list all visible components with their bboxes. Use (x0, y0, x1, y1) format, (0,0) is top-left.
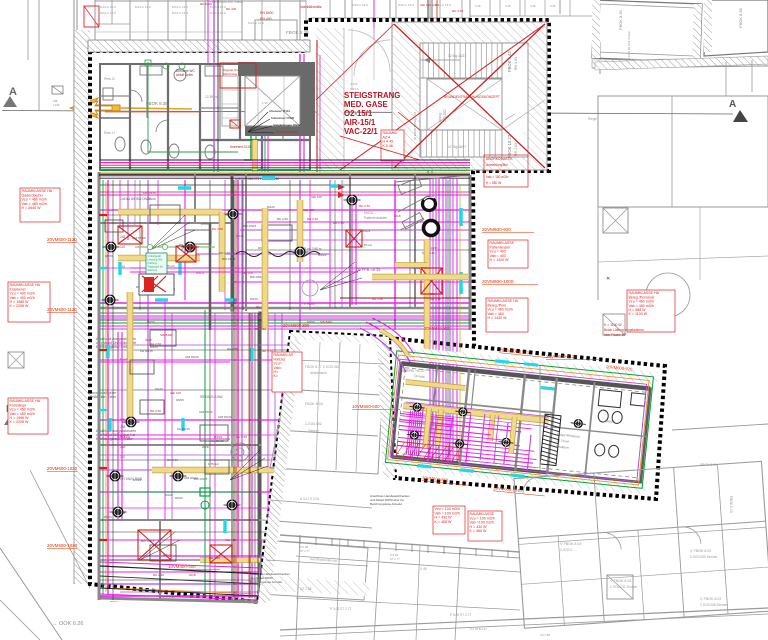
svg-text:Abwasser Ø110: Abwasser Ø110 (269, 109, 290, 113)
svg-text:Pers. H: Pers. H (104, 131, 115, 135)
svg-text:10VM400-400: 10VM400-400 (168, 564, 196, 569)
svg-text:FBOK 8.38: FBOK 8.38 (738, 7, 743, 28)
svg-text:BW DN15: BW DN15 (250, 275, 264, 279)
svg-text:H.EG0.09 E83 Schlaf: H.EG0.09 E83 Schlaf (627, 31, 631, 60)
svg-text:4.48: 4.48 (475, 4, 481, 8)
svg-text:BW DN15: BW DN15 (222, 257, 236, 261)
svg-text:Tragbügel für: Tragbügel für (148, 265, 163, 269)
svg-text:RH 2.50: RH 2.50 (236, 435, 247, 439)
svg-text:20VM600-920: 20VM600-920 (482, 227, 511, 232)
svg-text:ST 2.77: ST 2.77 (390, 557, 400, 561)
svg-text:C.EG0.062: C.EG0.062 (305, 422, 322, 426)
svg-text:A: A (9, 86, 17, 98)
svg-text:20VM600-1000: 20VM600-1000 (482, 279, 514, 284)
svg-text:DN20: DN20 (155, 387, 163, 391)
svg-text:RW22: RW22 (362, 229, 371, 233)
svg-text:RH 2.50: RH 2.50 (255, 327, 266, 331)
svg-text:4.48: 4.48 (550, 4, 556, 8)
svg-text:4.48: 4.48 (530, 4, 536, 8)
svg-text:C.EG0.009 Zimmer: C.EG0.009 Zimmer (690, 555, 718, 559)
svg-text:BW DN15: BW DN15 (194, 477, 208, 481)
svg-text:O2-15/1: O2-15/1 (344, 109, 373, 118)
svg-text:SW 8400: SW 8400 (118, 435, 131, 439)
svg-text:12 Stg 16/27: 12 Stg 16/27 (448, 145, 466, 149)
svg-text:RH 2.50: RH 2.50 (430, 297, 441, 301)
svg-text:12.38 m²: 12.38 m² (205, 95, 218, 99)
svg-text:Abfl DN20: Abfl DN20 (218, 415, 232, 419)
svg-text:H = 550 W: H = 550 W (486, 181, 501, 185)
svg-text:C.EG0.008 Zimmer: C.EG0.008 Zimmer (700, 603, 728, 607)
svg-text:C.EG0.011 Zimmer: C.EG0.011 Zimmer (610, 585, 638, 589)
svg-text:12 Stg 16/27: 12 Stg 16/27 (448, 54, 466, 58)
svg-text:P 3.08 ST 2.77: P 3.08 ST 2.77 (330, 607, 351, 611)
svg-text:8.04 m 12.0: 8.04 m 12.0 (100, 5, 116, 9)
svg-text:20VM600-1020: 20VM600-1020 (47, 466, 78, 471)
svg-text:RH 2.50: RH 2.50 (150, 342, 161, 346)
svg-text:20VM600-800: 20VM600-800 (424, 326, 451, 331)
svg-text:ABW DN110 B02: ABW DN110 B02 (275, 130, 298, 134)
svg-text:20VM600-1020: 20VM600-1020 (47, 543, 78, 548)
svg-text:4.425: 4.425 (350, 82, 358, 86)
svg-text:ST 2.77: ST 2.77 (300, 549, 310, 553)
svg-text:MED. GASE: MED. GASE (344, 100, 388, 109)
svg-text:RH 430: RH 430 (226, 7, 237, 11)
svg-text:DN50: DN50 (430, 246, 438, 250)
svg-text:Vab 100: Vab 100 (303, 208, 314, 212)
svg-text:DN20: DN20 (250, 297, 258, 301)
svg-text:4.48: 4.48 (505, 4, 511, 8)
svg-text:1.150: 1.150 (53, 103, 60, 107)
svg-text:K = 2208 W: K = 2208 W (10, 420, 29, 424)
svg-text:Vab 100 m3/h: Vab 100 m3/h (420, 3, 439, 7)
svg-text:1.75 m2: 1.75 m2 (361, 243, 372, 247)
svg-text:RH 2.50: RH 2.50 (167, 458, 178, 462)
svg-text:RH 2.50: RH 2.50 (277, 217, 288, 221)
svg-text:H = 2640 W: H = 2640 W (22, 206, 42, 210)
svg-text:⚲ FBOK 8.04: ⚲ FBOK 8.04 (560, 542, 581, 546)
svg-text:A: A (729, 99, 736, 110)
svg-text:RH 2.50: RH 2.50 (212, 227, 223, 231)
svg-text:K 5.46: K 5.46 (383, 144, 393, 148)
svg-text:DN20: DN20 (175, 496, 183, 500)
svg-text:RH 4.48: RH 4.48 (452, 9, 463, 13)
svg-text:Vab 100: Vab 100 (311, 195, 322, 199)
svg-text:ANORKOBAKTIK: ANORKOBAKTIK (486, 157, 513, 161)
svg-text:Kw DN15: Kw DN15 (140, 349, 153, 353)
svg-text:H = 1420 W: H = 1420 W (488, 316, 508, 320)
svg-text:Abzug: Abzug (438, 113, 442, 122)
svg-text:RH 2.50: RH 2.50 (262, 349, 273, 353)
svg-text:GR DN24 RSW: GR DN24 RSW (120, 477, 142, 481)
svg-text:PERSONAL E47 Klass.: PERSONAL E47 Klass. (210, 0, 243, 4)
svg-text:Pers. D: Pers. D (104, 77, 115, 81)
svg-text:Vab 100: Vab 100 (170, 391, 181, 395)
svg-text:RH 2.50: RH 2.50 (307, 217, 318, 221)
svg-text:Kühlung: Kühlung (148, 261, 158, 265)
svg-text:RH 8400: RH 8400 (200, 2, 212, 6)
svg-text:1.75 m2: 1.75 m2 (304, 302, 315, 306)
svg-text:20VM600-1120: 20VM600-1120 (47, 307, 77, 312)
svg-text:DN50: DN50 (201, 222, 209, 226)
svg-text:Leistung 30lt: Leistung 30lt (148, 258, 163, 262)
svg-text:Vab = 150 m3/h: Vab = 150 m3/h (486, 175, 509, 179)
svg-text:Kneesert D125: Kneesert D125 (230, 145, 251, 149)
svg-text:8.04 m 12.0: 8.04 m 12.0 (352, 3, 368, 7)
svg-text:K = 1100 W: K = 1100 W (604, 323, 622, 327)
svg-text:Kw DN15: Kw DN15 (211, 439, 224, 443)
svg-text:FBOK 8.09: FBOK 8.09 (700, 463, 717, 467)
svg-text:UZ 2.88: UZ 2.88 (540, 633, 550, 637)
svg-text:Riegel: Riegel (588, 117, 597, 121)
svg-text:RH 2.50: RH 2.50 (150, 409, 161, 413)
svg-text:A 2.02 B 2.04: A 2.02 B 2.04 (470, 627, 487, 631)
svg-text:RH 2.50: RH 2.50 (227, 347, 238, 351)
svg-text:8.04 m 12.0: 8.04 m 12.0 (248, 21, 264, 25)
svg-text:RH 2.50: RH 2.50 (359, 204, 370, 208)
svg-text:Kaltwasser DN20: Kaltwasser DN20 (271, 116, 295, 120)
svg-text:8.04 m 12.0: 8.04 m 12.0 (135, 5, 151, 9)
svg-text:DN50: DN50 (105, 254, 113, 258)
svg-text:Zimmer: Zimmer (308, 429, 320, 433)
svg-text:UG/-2/02: UG/-2/02 (443, 109, 447, 122)
svg-text:248: 248 (53, 99, 58, 103)
svg-text:Vab 100 m3/h: Vab 100 m3/h (300, 5, 321, 9)
svg-text:Berührungslose Armatur: Berührungslose Armatur (250, 580, 282, 584)
svg-text:RH 430: RH 430 (260, 17, 272, 21)
svg-text:K = 2208 W: K = 2208 W (10, 304, 29, 308)
svg-text:8.04 m 12.0: 8.04 m 12.0 (398, 3, 414, 7)
svg-text:SW 8400: SW 8400 (320, 320, 333, 324)
svg-text:C.EG0.0…: C.EG0.0… (560, 548, 575, 552)
svg-text:Wartung: Wartung (148, 268, 158, 272)
svg-text:RH 4.83: RH 4.83 (514, 57, 518, 70)
svg-text:Anmeldung/Bel: Anmeldung/Bel (486, 163, 508, 167)
svg-text:✕: ✕ (606, 276, 610, 282)
svg-text:K = 465 W: K = 465 W (470, 529, 487, 533)
svg-text:ENOO: ENOO (364, 211, 374, 215)
svg-text:Berührungslose Armatur: Berührungslose Armatur (370, 502, 402, 506)
svg-text:BH00: BH00 (604, 419, 613, 424)
svg-text:8.04 m 12.0: 8.04 m 12.0 (172, 5, 188, 9)
svg-text:AIR-15/1: AIR-15/1 (344, 118, 376, 127)
svg-text:DN20: DN20 (104, 515, 112, 519)
svg-text:Abstellraum: Abstellraum (310, 371, 327, 375)
svg-text:⚲ FBOK 8.05: ⚲ FBOK 8.05 (610, 579, 631, 583)
svg-text:Vzu = 150 m3/h: Vzu = 150 m3/h (486, 169, 509, 173)
svg-text:FBOK 8.04: FBOK 8.04 (305, 402, 323, 406)
svg-text:FBOK 8.77 C.EG0.061: FBOK 8.77 C.EG0.061 (305, 365, 340, 369)
svg-text:110: 110 (120, 245, 125, 249)
svg-text:20VM600-1120: 20VM600-1120 (546, 354, 578, 359)
svg-text:20VM600-800: 20VM600-800 (283, 323, 310, 328)
svg-text:⚲ FBOK 8.02: ⚲ FBOK 8.02 (690, 549, 711, 553)
svg-text:UZ 2.88: UZ 2.88 (300, 587, 312, 591)
svg-text:20x8: 20x8 (189, 573, 196, 577)
svg-text:248: 248 (120, 425, 126, 429)
svg-text:Abluft Keller: Abluft Keller (176, 73, 194, 77)
svg-text:DN50: DN50 (228, 301, 236, 305)
svg-text:RH 2.50: RH 2.50 (153, 573, 164, 577)
svg-text:Kw DN15: Kw DN15 (143, 191, 156, 195)
svg-text:1.96: 1.96 (262, 101, 268, 105)
svg-text:FBOK 10.27: FBOK 10.27 (507, 134, 512, 158)
svg-text:Patientenwarten: Patientenwarten (364, 216, 387, 220)
svg-text:8.04 m 12.0: 8.04 m 12.0 (172, 11, 188, 15)
svg-text:Beide Lüftung vergeladenen: Beide Lüftung vergeladenen (604, 328, 644, 332)
svg-text:FBOK 8.39: FBOK 8.39 (618, 9, 623, 30)
svg-text:SR DN24 B BW: SR DN24 B BW (200, 395, 223, 399)
svg-text:K=: K= (274, 374, 279, 378)
svg-text:⚲ FBOK 8.03: ⚲ FBOK 8.03 (700, 597, 721, 601)
svg-text:FBOK 8.35: FBOK 8.35 (146, 101, 168, 106)
svg-text:RH 2.50: RH 2.50 (219, 251, 230, 255)
svg-text:P 5.09 ST 2.77: P 5.09 ST 2.77 (450, 613, 471, 617)
svg-text:8.04 m 12.0: 8.04 m 12.0 (100, 11, 116, 15)
svg-text:VAC-22/1: VAC-22/1 (344, 127, 378, 136)
svg-text:Kw DN15: Kw DN15 (177, 427, 190, 431)
svg-text:Abluft über: Abluft über (223, 72, 238, 76)
svg-text:RH 2.50: RH 2.50 (333, 221, 344, 225)
svg-text:10n L 2.50: 10n L 2.50 (160, 595, 175, 599)
svg-text:über Fläche 60°: über Fläche 60° (604, 333, 627, 337)
svg-text:K = 465 W: K = 465 W (435, 520, 452, 524)
svg-text:FBOK 6.42: FBOK 6.42 (507, 51, 512, 72)
svg-text:Lo/Dez 8/6 BW DN20: Lo/Dez 8/6 BW DN20 (120, 197, 151, 201)
svg-text:STEIGSTRANG: STEIGSTRANG (344, 91, 400, 100)
svg-text:A 3.01 S 3.04: A 3.01 S 3.04 (300, 497, 319, 501)
svg-text:1.75 m2: 1.75 m2 (208, 462, 219, 466)
svg-text:Umluftgerät: Umluftgerät (148, 254, 162, 258)
svg-text:RH 2.50: RH 2.50 (372, 297, 383, 301)
svg-text:110: 110 (120, 455, 125, 459)
svg-text:DN50: DN50 (176, 398, 184, 402)
svg-text:20VM600-1120: 20VM600-1120 (47, 237, 77, 242)
svg-text:0.45: 0.45 (420, 567, 427, 571)
svg-text:Abfl DN20: Abfl DN20 (199, 410, 213, 414)
svg-text:DN50: DN50 (147, 320, 155, 324)
svg-text:10VM600-600: 10VM600-600 (352, 404, 380, 409)
svg-text:BW DN15: BW DN15 (243, 224, 257, 228)
svg-text:1.75 m2: 1.75 m2 (117, 357, 128, 361)
svg-text:K = 1100 W: K = 1100 W (629, 312, 648, 316)
svg-text:Steigleitungen DN32: Steigleitungen DN32 (273, 123, 301, 127)
svg-text:Vab 100: Vab 100 (225, 538, 236, 542)
svg-text:RH 4.63: RH 4.63 (514, 143, 518, 156)
svg-text:OKFFB ≈8.35: OKFFB ≈8.35 (356, 267, 381, 272)
svg-text:20x8: 20x8 (202, 445, 209, 449)
svg-text:DN20: DN20 (165, 493, 173, 497)
svg-text:BRANDENTRALCHUNGSKONZEPT: BRANDENTRALCHUNGSKONZEPT (444, 95, 500, 99)
svg-text:FBOK 8.09: FBOK 8.09 (729, 496, 733, 513)
svg-text:Abfl DN20: Abfl DN20 (185, 355, 199, 359)
svg-text:→ OOK 6.26: → OOK 6.26 (52, 621, 84, 627)
svg-text:20x8: 20x8 (394, 214, 401, 218)
svg-text:SW 8400: SW 8400 (160, 333, 173, 337)
svg-text:H = 1420 W: H = 1420 W (490, 258, 510, 262)
svg-text:RH 8400: RH 8400 (260, 11, 273, 15)
